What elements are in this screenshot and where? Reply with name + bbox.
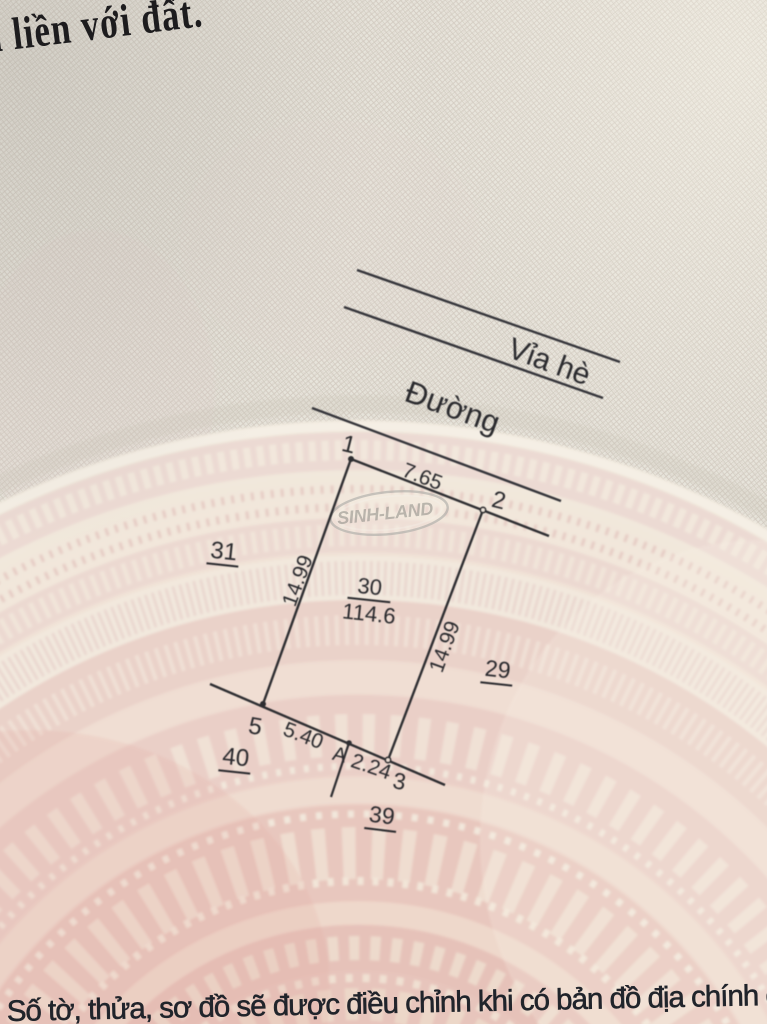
svg-text:40: 40 [221, 743, 250, 773]
svg-text:29: 29 [484, 655, 512, 684]
svg-text:39: 39 [368, 801, 397, 830]
svg-text:30: 30 [356, 573, 383, 600]
svg-text:31: 31 [209, 537, 238, 567]
